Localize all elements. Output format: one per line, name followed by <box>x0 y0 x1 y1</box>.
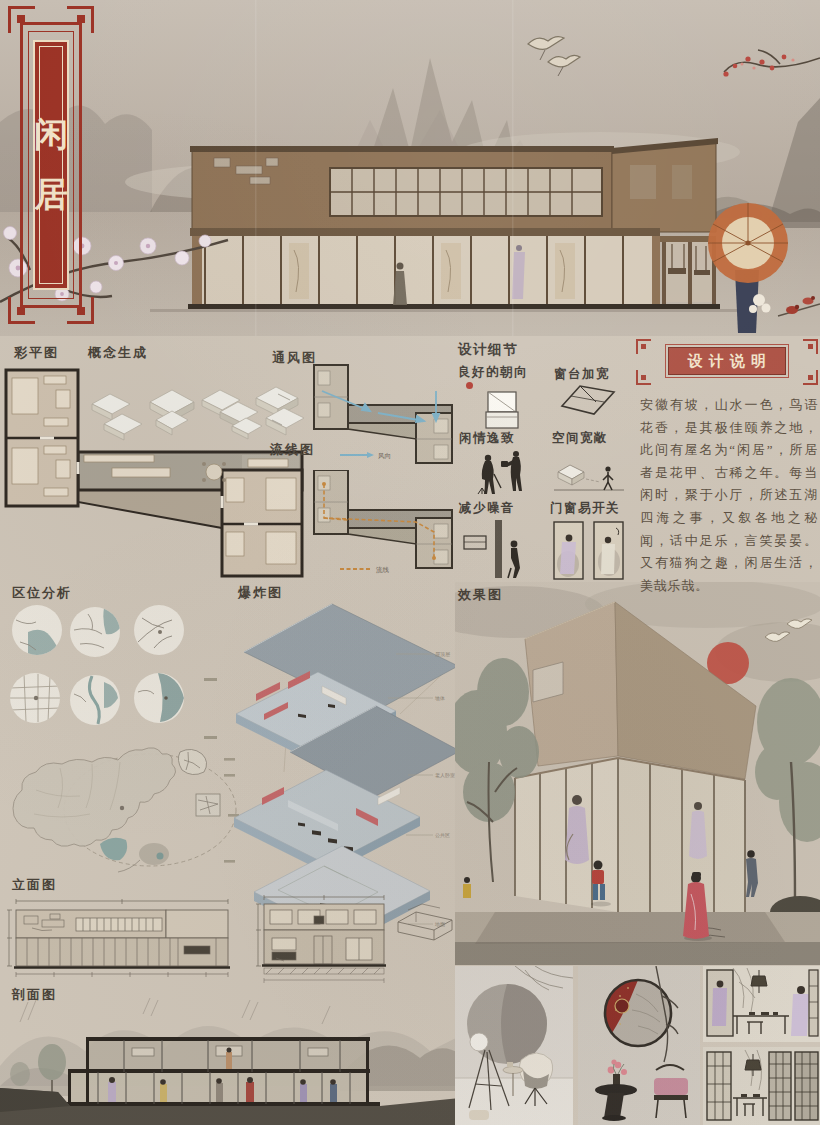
plaque-panel: 闲 居 <box>33 40 69 290</box>
map-inset-circles <box>10 605 184 725</box>
ventilation-plan: 风向 <box>312 363 460 467</box>
plaque-corner-dot <box>17 307 25 315</box>
detail-item-orientation: 良好的朝向 <box>458 364 528 381</box>
exploded-labels: 屋顶层 墙体 老人卧室 公共区 地面 <box>434 651 455 928</box>
detail-item-spacious: 空间宽敞 <box>552 430 608 447</box>
perspective-render <box>455 582 820 965</box>
frame-corner-dot <box>808 344 813 349</box>
widened-sill-icon <box>558 382 616 418</box>
title-plaque: 闲 居 <box>8 6 94 324</box>
label-section: 剖面图 <box>12 986 57 1004</box>
svg-text:老人卧室: 老人卧室 <box>435 772 455 778</box>
noise-wall-icon <box>462 518 526 580</box>
elevation-drawing-1 <box>6 896 244 980</box>
section-building <box>60 1037 380 1107</box>
description-title-frame: 设计说明 <box>636 339 818 385</box>
frame-corner-dot <box>641 344 646 349</box>
location-circles <box>8 602 220 744</box>
massing-step-3 <box>202 390 262 439</box>
elevation-drawing-2 <box>256 892 460 986</box>
frame-corner-dot <box>808 375 813 380</box>
flow-legend: 流线 <box>340 566 390 574</box>
massing-step-2 <box>150 390 194 435</box>
section-drawing <box>0 996 460 1125</box>
detail-item-windowsill: 窗台加宽 <box>554 366 610 383</box>
china-map <box>0 738 240 890</box>
lamp-globe <box>470 1033 488 1051</box>
wind-legend: 风向 <box>340 452 391 459</box>
label-color-plan: 彩平图 <box>14 344 59 362</box>
pouf <box>469 1110 489 1120</box>
poster-root: 闲 居 彩平图 概念生成 通风图 流线图 区位分析 爆炸图 效果图 立面图 剖面… <box>0 0 820 1125</box>
detail-item-doors: 门窗易开关 <box>550 500 620 517</box>
description-title: 设计说明 <box>668 347 786 375</box>
hero-illustration <box>0 0 820 336</box>
interior-photo-2 <box>578 966 700 1125</box>
svg-text:屋顶层: 屋顶层 <box>435 651 450 657</box>
detail-item-noise: 减少噪音 <box>459 500 515 517</box>
frame-corner-dot <box>641 375 646 380</box>
circulation-plan: 流线 <box>312 470 460 576</box>
detail-item-leisure: 闲情逸致 <box>459 430 515 447</box>
figures-leisure-icon <box>470 448 534 500</box>
interior-photo-1 <box>455 966 573 1125</box>
label-location: 区位分析 <box>12 584 72 602</box>
axon-inset <box>398 904 452 940</box>
label-elevation: 立面图 <box>12 876 57 894</box>
label-concept: 概念生成 <box>88 344 148 362</box>
svg-text:墙体: 墙体 <box>434 695 445 701</box>
render-ground <box>455 912 820 965</box>
details-title: 设计细节 <box>458 341 518 359</box>
doors-icon <box>552 520 626 582</box>
label-ventilation: 通风图 <box>272 349 317 367</box>
red-dot-icon <box>466 382 473 389</box>
interior-photo-3 <box>703 966 820 1125</box>
plaque-char-top: 闲 <box>34 118 68 152</box>
label-exploded: 爆炸图 <box>238 584 283 602</box>
concept-massing-diagram <box>86 372 304 446</box>
description-body: 安徽有坡，山水一色，鸟语花香，是其极佳颐养之地，此间有屋名为“闲居”，所居者是花… <box>640 394 818 597</box>
massing-step-4 <box>256 387 304 435</box>
spacious-space-icon <box>552 452 626 496</box>
plaque-char-bottom: 居 <box>34 178 68 212</box>
building-elevation <box>150 138 750 312</box>
massing-step-1 <box>92 394 142 440</box>
micro-label-mark <box>204 678 217 681</box>
svg-text:公共区: 公共区 <box>435 832 450 838</box>
label-circulation: 流线图 <box>270 441 315 459</box>
svg-text:风向: 风向 <box>378 452 391 459</box>
label-render: 效果图 <box>458 586 503 604</box>
window-sill-icon <box>484 390 520 434</box>
site-marker <box>120 806 124 810</box>
plaque-corner-dot <box>77 307 85 315</box>
svg-text:流线: 流线 <box>376 566 390 574</box>
china-outline <box>13 748 176 847</box>
